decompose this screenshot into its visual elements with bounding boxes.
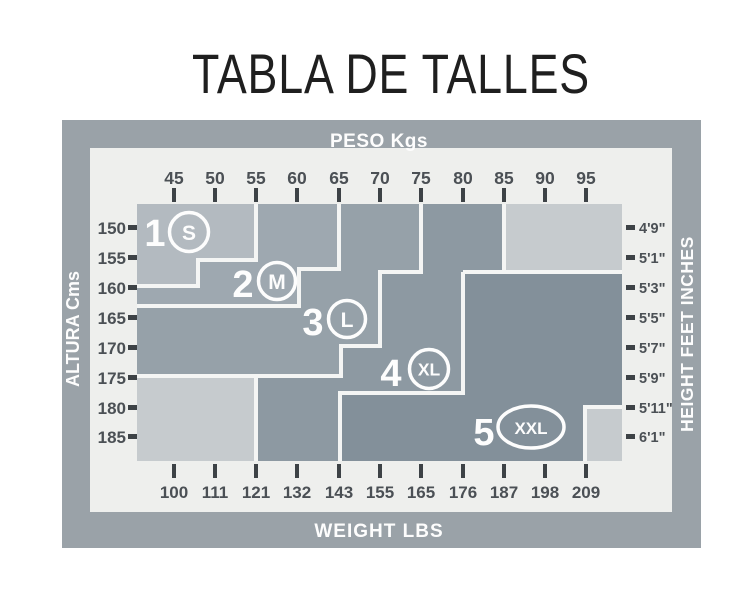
- kg-tick-label: 55: [246, 168, 266, 188]
- cm-tick-label: 150: [98, 219, 126, 238]
- tick: [337, 464, 341, 478]
- tick: [128, 285, 137, 290]
- inch-tick-label: 5'9": [639, 371, 665, 387]
- tick: [543, 188, 547, 202]
- kg-tick-label: 75: [411, 168, 431, 188]
- size-number: 5: [473, 412, 494, 454]
- lbs-tick-label: 111: [202, 483, 229, 502]
- size-number: 1: [144, 213, 165, 255]
- kg-tick-label: 50: [205, 168, 225, 188]
- tick: [626, 345, 635, 350]
- cm-tick-label: 180: [98, 399, 126, 418]
- cm-tick-label: 160: [98, 279, 126, 298]
- kg-tick-label: 85: [494, 168, 514, 188]
- tick: [295, 464, 299, 478]
- tick: [626, 285, 635, 290]
- lbs-tick-label: 143: [325, 483, 353, 502]
- kg-tick-label: 65: [329, 168, 349, 188]
- tick: [461, 464, 465, 478]
- unsized-area-bottom-right: [585, 407, 622, 461]
- inch-tick-label: 5'1": [639, 251, 665, 267]
- size-number: 4: [380, 353, 401, 395]
- tick: [626, 405, 635, 410]
- tick: [626, 315, 635, 320]
- kg-tick-label: 90: [535, 168, 555, 188]
- lbs-tick-label: 209: [572, 483, 600, 502]
- cm-tick-label: 155: [98, 249, 126, 268]
- inch-tick-label: 4'9": [639, 221, 665, 237]
- tick: [213, 188, 217, 202]
- cm-tick-label: 165: [98, 309, 126, 328]
- inch-tick-label: 6'1": [639, 430, 665, 446]
- tick: [502, 464, 506, 478]
- tick: [626, 225, 635, 230]
- tick: [419, 464, 423, 478]
- inch-tick-label: 5'5": [639, 311, 665, 327]
- lbs-tick-label: 121: [242, 483, 270, 502]
- tick: [128, 405, 137, 410]
- size-code: S: [182, 222, 196, 245]
- tick: [584, 464, 588, 478]
- lbs-tick-label: 155: [366, 483, 394, 502]
- tick: [378, 464, 382, 478]
- lbs-tick-label: 198: [531, 483, 559, 502]
- tick: [128, 225, 137, 230]
- lbs-tick-label: 176: [449, 483, 477, 502]
- cm-tick-label: 175: [98, 369, 126, 388]
- tick: [626, 255, 635, 260]
- tick: [295, 188, 299, 202]
- inch-tick-label: 5'11": [639, 401, 673, 417]
- unsized-area-top-right: [504, 204, 622, 272]
- bottom-axis-labels: 100 111 121 132 143 155 165 176 187 198 …: [160, 483, 600, 502]
- lbs-tick-label: 132: [283, 483, 311, 502]
- cm-tick-label: 185: [98, 428, 126, 447]
- kg-tick-label: 70: [370, 168, 390, 188]
- size-code: XXL: [514, 419, 547, 438]
- tick: [626, 434, 635, 439]
- tick: [172, 188, 176, 202]
- tick: [128, 434, 137, 439]
- page-title: TABLA DE TALLES: [192, 42, 590, 105]
- tick: [172, 464, 176, 478]
- size-number: 2: [232, 264, 253, 306]
- tick: [337, 188, 341, 202]
- unsized-area-bottom-left: [137, 376, 256, 461]
- right-axis-title: HEIGHT FEET INCHES: [677, 236, 697, 432]
- size-number: 3: [302, 302, 323, 344]
- lbs-tick-label: 100: [160, 483, 188, 502]
- size-code: L: [341, 309, 354, 332]
- bottom-axis-title: WEIGHT LBS: [314, 521, 443, 542]
- tick: [419, 188, 423, 202]
- lbs-tick-label: 165: [407, 483, 435, 502]
- tick: [128, 315, 137, 320]
- tick: [128, 255, 137, 260]
- tick: [128, 375, 137, 380]
- tick: [502, 188, 506, 202]
- top-axis-title: PESO Kgs: [330, 131, 428, 152]
- left-axis-title: ALTURA Cms: [63, 271, 83, 387]
- tick: [461, 188, 465, 202]
- lbs-tick-label: 187: [490, 483, 518, 502]
- tick: [254, 188, 258, 202]
- tick: [543, 464, 547, 478]
- kg-tick-label: 80: [453, 168, 473, 188]
- tick: [213, 464, 217, 478]
- size-chart-figure: TABLA DE TALLES PESO Kgs WEIGHT LBS ALTU…: [0, 0, 754, 591]
- kg-tick-label: 95: [576, 168, 596, 188]
- tick: [378, 188, 382, 202]
- tick: [128, 345, 137, 350]
- size-chart-page: TABLA DE TALLES PESO Kgs WEIGHT LBS ALTU…: [0, 0, 754, 591]
- tick: [584, 188, 588, 202]
- cm-tick-label: 170: [98, 339, 126, 358]
- kg-tick-label: 60: [287, 168, 307, 188]
- tick: [626, 375, 635, 380]
- inch-tick-label: 5'7": [639, 341, 665, 357]
- size-code: M: [268, 271, 286, 294]
- kg-tick-label: 45: [164, 168, 184, 188]
- tick: [254, 464, 258, 478]
- size-code: XL: [418, 360, 441, 380]
- inch-tick-label: 5'3": [639, 281, 665, 297]
